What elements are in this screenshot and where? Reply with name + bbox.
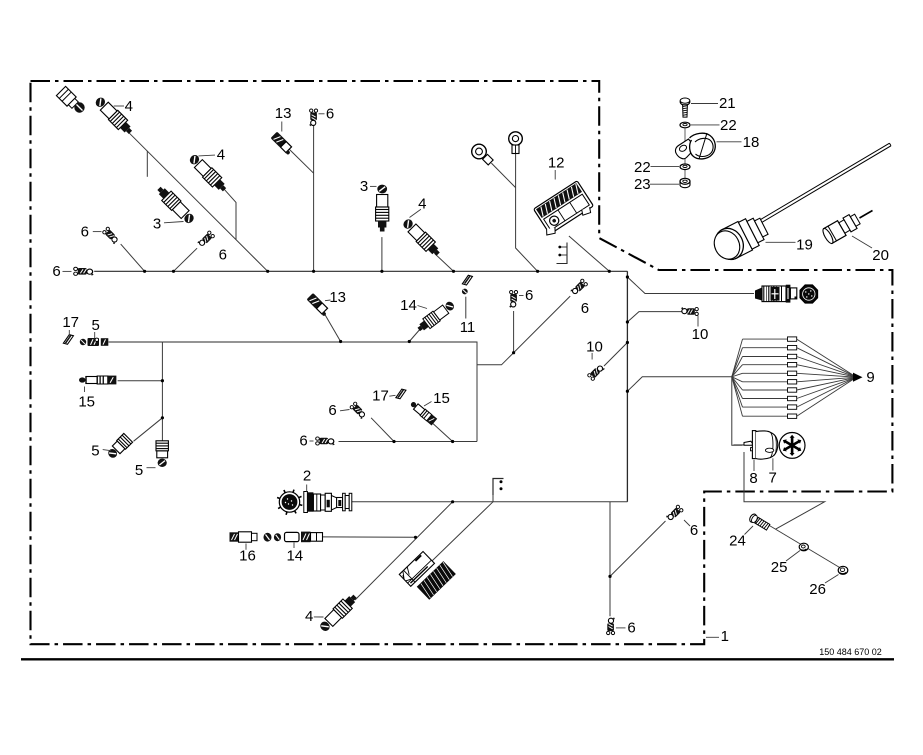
svg-text:5: 5: [135, 462, 143, 479]
svg-text:26: 26: [809, 581, 826, 598]
svg-text:10: 10: [586, 339, 603, 356]
svg-text:7: 7: [769, 470, 777, 487]
svg-text:6: 6: [525, 287, 533, 304]
svg-text:4: 4: [305, 608, 313, 625]
svg-text:3: 3: [360, 178, 368, 195]
svg-text:4: 4: [217, 147, 225, 164]
svg-text:18: 18: [743, 134, 760, 151]
svg-text:13: 13: [275, 105, 292, 122]
svg-text:4: 4: [125, 98, 133, 115]
svg-text:13: 13: [329, 289, 346, 306]
svg-text:6: 6: [299, 433, 307, 450]
svg-text:21: 21: [719, 95, 736, 112]
svg-text:19: 19: [796, 236, 813, 253]
svg-text:6: 6: [81, 224, 89, 241]
svg-text:23: 23: [634, 176, 651, 193]
svg-text:6: 6: [627, 620, 635, 637]
svg-text:6: 6: [581, 300, 589, 317]
svg-text:11: 11: [460, 319, 476, 336]
svg-text:6: 6: [328, 402, 336, 419]
svg-text:6: 6: [326, 106, 334, 123]
svg-text:22: 22: [720, 117, 737, 134]
svg-text:4: 4: [418, 196, 426, 213]
svg-text:5: 5: [91, 442, 99, 459]
svg-text:9: 9: [866, 369, 874, 386]
svg-text:25: 25: [771, 559, 788, 576]
svg-text:15: 15: [433, 390, 450, 407]
svg-text:12: 12: [548, 155, 565, 172]
svg-text:1: 1: [721, 628, 729, 645]
svg-text:5: 5: [92, 317, 100, 334]
svg-text:17: 17: [62, 314, 79, 331]
svg-text:150 484 670 02: 150 484 670 02: [819, 647, 882, 657]
svg-text:6: 6: [52, 263, 60, 280]
svg-text:6: 6: [219, 247, 227, 264]
svg-text:8: 8: [749, 470, 757, 487]
svg-text:16: 16: [239, 548, 256, 565]
svg-text:22: 22: [634, 159, 651, 176]
svg-text:17: 17: [372, 388, 389, 405]
svg-text:10: 10: [692, 326, 709, 343]
svg-text:2: 2: [303, 468, 311, 485]
svg-text:14: 14: [400, 297, 417, 314]
svg-text:15: 15: [78, 393, 95, 410]
svg-text:6: 6: [690, 522, 698, 539]
svg-text:14: 14: [286, 547, 303, 564]
svg-text:24: 24: [729, 533, 746, 550]
svg-text:3: 3: [153, 216, 161, 233]
svg-text:20: 20: [872, 247, 889, 264]
